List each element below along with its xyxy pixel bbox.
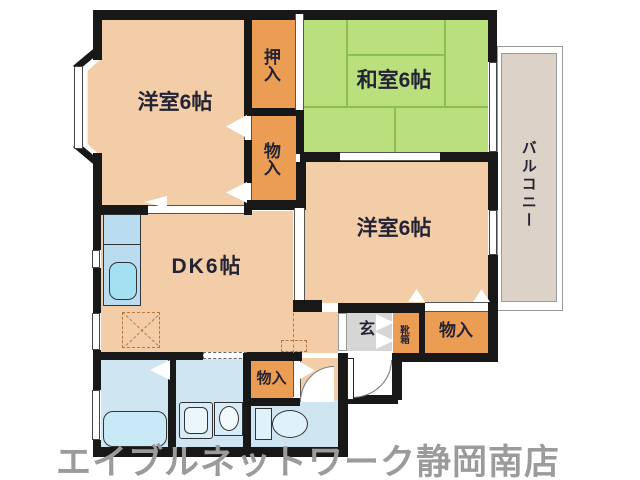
wall-segment [338,303,425,313]
western-right-door [294,208,305,300]
room-label-western-left: 洋室6帖 [110,92,240,114]
wall-segment [93,352,203,360]
closet-label-entrance: 物入 [423,322,489,340]
wall-segment [488,10,497,62]
entry-door-leaf [347,358,354,400]
side-window [92,313,100,350]
wall-segment [247,398,300,406]
entrance-label: 玄 [352,322,382,339]
wall-segment [402,353,497,362]
floorplan-canvas: 洋室6帖 和室6帖 洋室6帖 DK6帖 押入 物入 物入 物入 玄 靴箱 バルコ… [0,0,640,480]
tatami-line [444,18,446,107]
closet-label-bottom: 物入 [248,371,295,387]
wall-segment [93,268,101,313]
tatami-line [394,106,396,154]
wall-segment [93,215,101,250]
tatami-line [346,54,446,56]
closet-entrance-doors [425,302,488,312]
wall-segment [247,352,302,361]
washroom-folding-door [203,352,247,359]
wall-segment [296,162,306,208]
vanity-bowl [219,406,239,431]
room-label-western-right: 洋室6帖 [329,218,459,240]
wall-segment [392,353,402,400]
oshiire-sliding-door [295,14,304,110]
watermark-store-name: エイブルネットワーク静岡南店 [56,434,560,480]
kitchen-counter-divider [103,244,141,245]
wall-segment [244,10,252,112]
refrigerator-space [122,312,160,348]
kitchen-sink [109,262,137,300]
washing-machine-drum [184,407,208,434]
kitchen-window [92,250,100,268]
western-right-window [489,210,497,255]
genkan-step [338,313,347,351]
room-label-japanese: 和室6帖 [329,70,459,92]
closet-label-oshiire: 押入 [261,32,279,98]
dk-hall-dotted-boundary [293,313,295,353]
entry-door-swing [352,360,392,398]
tatami-line [346,18,348,107]
wall-segment [244,140,252,183]
wall-segment [488,152,498,210]
balcony-label: バルコニー [520,105,536,265]
sliding-door [340,152,440,161]
closet-label-middle: 物入 [261,126,279,192]
japanese-room-window [489,62,497,152]
wall-segment [293,300,322,312]
shoebox-label: 靴箱 [398,316,408,352]
wall-segment [488,255,498,362]
bay-window [74,66,83,149]
room-label-dk: DK6帖 [143,256,271,278]
wall-segment [296,114,304,154]
bath-window [92,390,100,440]
bay-window-floor [84,58,102,157]
